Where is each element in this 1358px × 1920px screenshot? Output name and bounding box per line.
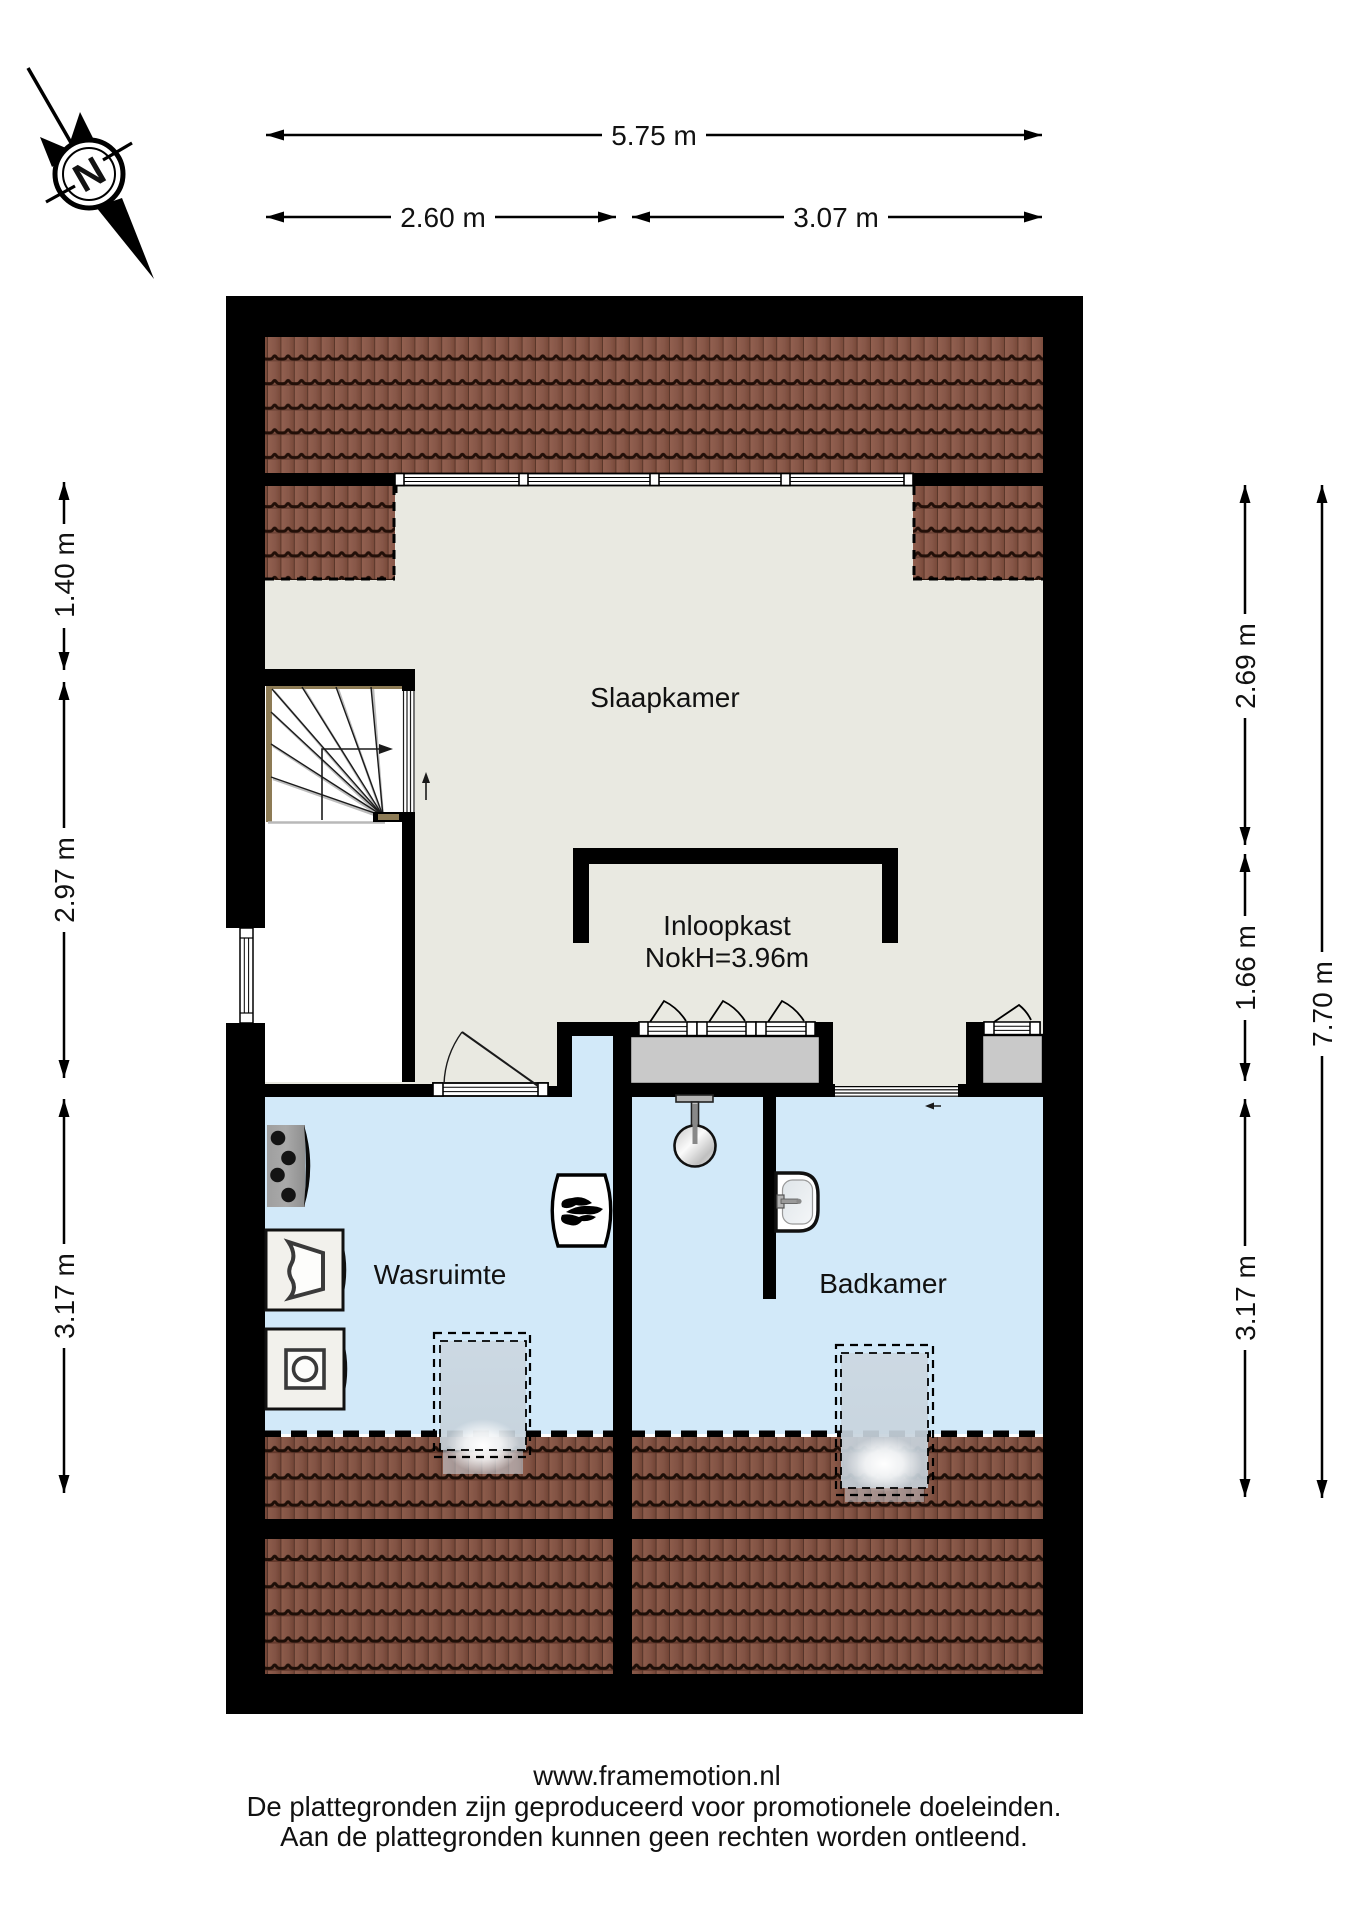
svg-text:Aan de plattegronden kunnen ge: Aan de plattegronden kunnen geen rechten…: [280, 1821, 1028, 1852]
svg-text:Wasruimte: Wasruimte: [374, 1259, 507, 1290]
svg-text:Slaapkamer: Slaapkamer: [590, 682, 739, 713]
svg-text:www.framemotion.nl: www.framemotion.nl: [532, 1760, 781, 1791]
svg-text:NokH=3.96m: NokH=3.96m: [645, 942, 809, 973]
svg-text:2.97 m: 2.97 m: [49, 837, 80, 923]
svg-text:1.40 m: 1.40 m: [49, 532, 80, 618]
svg-text:Badkamer: Badkamer: [819, 1268, 947, 1299]
svg-text:2.60 m: 2.60 m: [400, 202, 486, 233]
svg-text:5.75 m: 5.75 m: [611, 120, 697, 151]
svg-text:3.07 m: 3.07 m: [793, 202, 879, 233]
svg-text:3.17 m: 3.17 m: [49, 1253, 80, 1339]
svg-text:2.69 m: 2.69 m: [1230, 623, 1261, 709]
svg-text:1.66 m: 1.66 m: [1230, 925, 1261, 1011]
svg-text:Inloopkast: Inloopkast: [663, 910, 791, 941]
svg-text:De plattegronden zijn geproduc: De plattegronden zijn geproduceerd voor …: [247, 1791, 1062, 1822]
svg-text:7.70 m: 7.70 m: [1307, 961, 1338, 1047]
svg-text:3.17 m: 3.17 m: [1230, 1255, 1261, 1341]
